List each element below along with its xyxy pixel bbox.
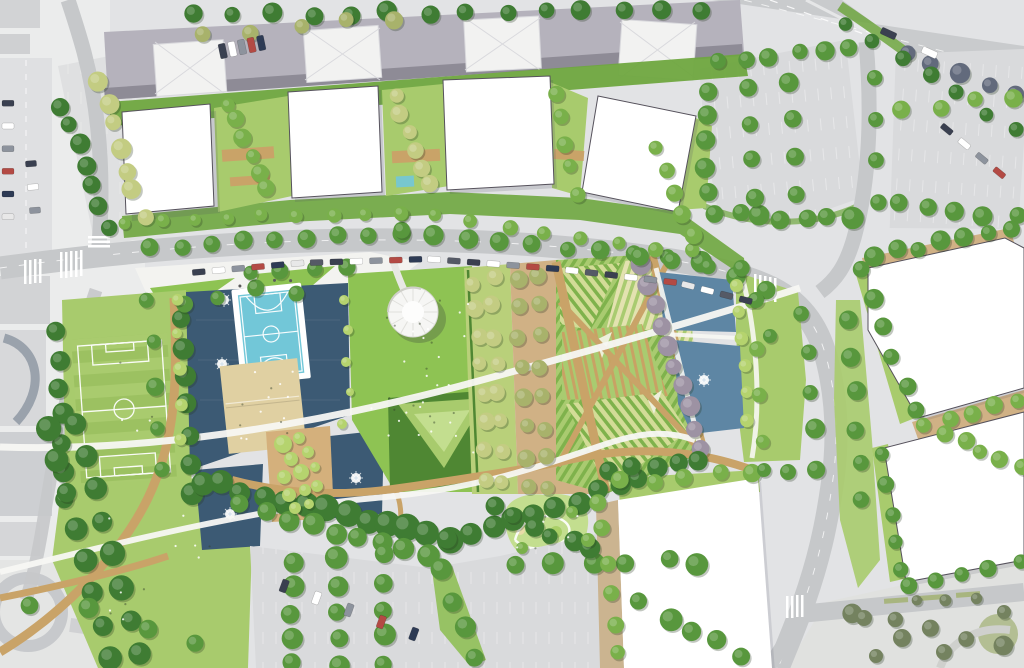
parked-car — [546, 265, 559, 272]
gray-building-b — [0, 34, 30, 54]
parked-car — [271, 261, 284, 268]
parked-car — [2, 146, 14, 152]
site-plan-canvas — [0, 0, 1024, 668]
parked-car — [409, 256, 422, 262]
parked-car — [526, 263, 539, 270]
parked-car — [251, 263, 264, 270]
parked-car — [291, 260, 304, 267]
parked-car — [604, 271, 618, 278]
parked-car — [2, 214, 14, 220]
courtyard-pool — [396, 176, 415, 188]
parked-car — [232, 265, 245, 272]
parked-car — [192, 269, 205, 276]
parked-car — [330, 259, 343, 265]
parked-car — [467, 259, 480, 266]
parked-car — [25, 160, 36, 167]
masterplan-rendering — [0, 0, 1024, 668]
parked-car — [2, 123, 14, 129]
parked-car — [369, 257, 382, 263]
parked-car — [506, 262, 519, 269]
building-2 — [288, 86, 382, 198]
parked-car — [212, 267, 225, 274]
parked-car — [2, 191, 14, 197]
parked-car — [310, 259, 323, 265]
parked-car — [2, 168, 14, 174]
parked-car — [487, 260, 500, 267]
building-3 — [443, 76, 554, 190]
parked-car — [27, 184, 38, 191]
parked-car — [389, 257, 402, 263]
fountain-5 — [697, 373, 711, 387]
tent-crown — [402, 301, 424, 323]
crosswalk-north-road — [88, 236, 110, 248]
gray-building-a — [0, 0, 40, 28]
parked-car — [350, 258, 363, 264]
parked-car — [427, 256, 440, 263]
parked-car — [29, 207, 40, 214]
parked-car — [2, 100, 14, 106]
parked-car — [585, 269, 599, 276]
parked-car — [447, 257, 460, 264]
parked-car — [565, 267, 579, 274]
parked-car — [624, 274, 638, 281]
parked-car — [644, 276, 658, 283]
fountain-4 — [349, 471, 363, 485]
parked-car — [663, 278, 677, 285]
